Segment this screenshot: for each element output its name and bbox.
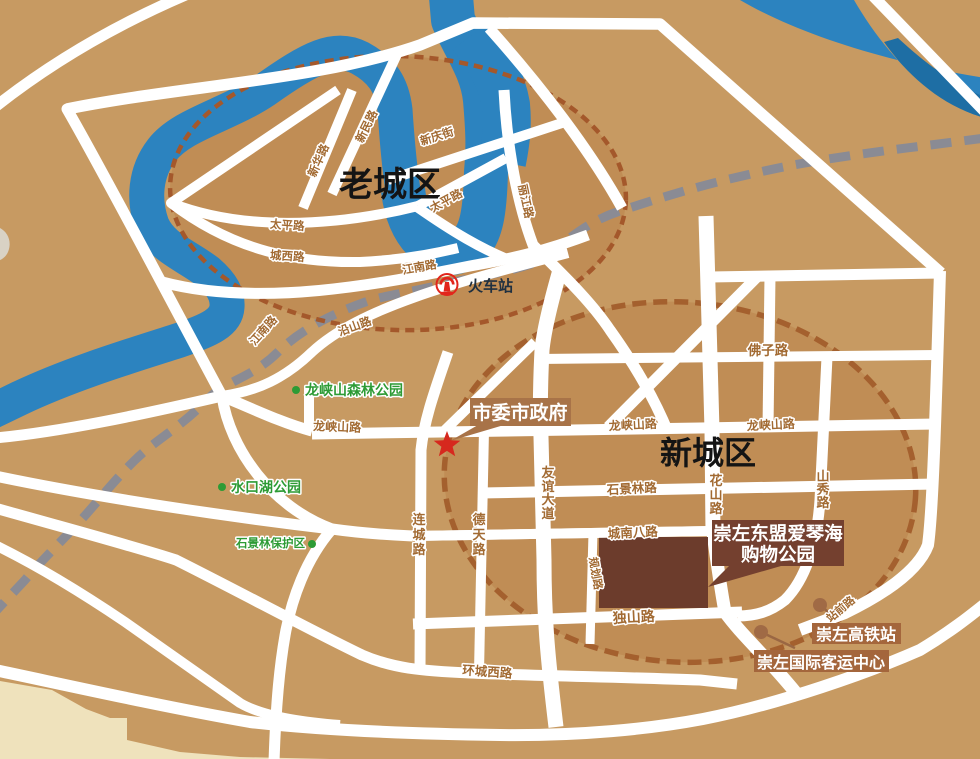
svg-text:大: 大 bbox=[541, 492, 554, 507]
svg-text:龙峡山路: 龙峡山路 bbox=[746, 416, 796, 434]
svg-text:路: 路 bbox=[412, 542, 426, 557]
svg-text:花: 花 bbox=[709, 473, 722, 488]
svg-text:路: 路 bbox=[816, 495, 830, 510]
svg-text:水口湖公园: 水口湖公园 bbox=[231, 479, 301, 495]
svg-text:火车站: 火车站 bbox=[468, 277, 513, 295]
svg-text:天: 天 bbox=[472, 527, 486, 542]
svg-text:独山路: 独山路 bbox=[612, 608, 656, 626]
svg-text:德: 德 bbox=[472, 512, 485, 527]
svg-text:路: 路 bbox=[472, 542, 486, 557]
svg-text:城南八路: 城南八路 bbox=[607, 524, 658, 542]
svg-text:佛子路: 佛子路 bbox=[747, 342, 789, 358]
svg-text:龙峡山路: 龙峡山路 bbox=[608, 416, 658, 434]
svg-text:市委市政府: 市委市政府 bbox=[472, 401, 567, 424]
svg-text:龙峡山路: 龙峡山路 bbox=[313, 418, 362, 435]
svg-text:崇左高铁站: 崇左高铁站 bbox=[816, 625, 896, 644]
svg-text:石景林路: 石景林路 bbox=[605, 480, 657, 498]
svg-text:道: 道 bbox=[541, 506, 554, 521]
svg-text:友: 友 bbox=[541, 465, 554, 480]
svg-text:新城区: 新城区 bbox=[660, 435, 756, 471]
svg-text:山: 山 bbox=[709, 487, 722, 502]
svg-text:购物公园: 购物公园 bbox=[741, 544, 815, 565]
svg-text:城: 城 bbox=[412, 527, 425, 542]
svg-text:老城区: 老城区 bbox=[339, 166, 441, 204]
svg-text:崇左东盟爱琴海: 崇左东盟爱琴海 bbox=[713, 523, 843, 544]
svg-text:龙峡山森林公园: 龙峡山森林公园 bbox=[304, 382, 403, 398]
svg-text:石景林保护区: 石景林保护区 bbox=[235, 536, 305, 550]
svg-text:连: 连 bbox=[412, 512, 426, 527]
svg-text:路: 路 bbox=[709, 501, 723, 516]
svg-text:崇左国际客运中心: 崇左国际客运中心 bbox=[757, 653, 885, 672]
